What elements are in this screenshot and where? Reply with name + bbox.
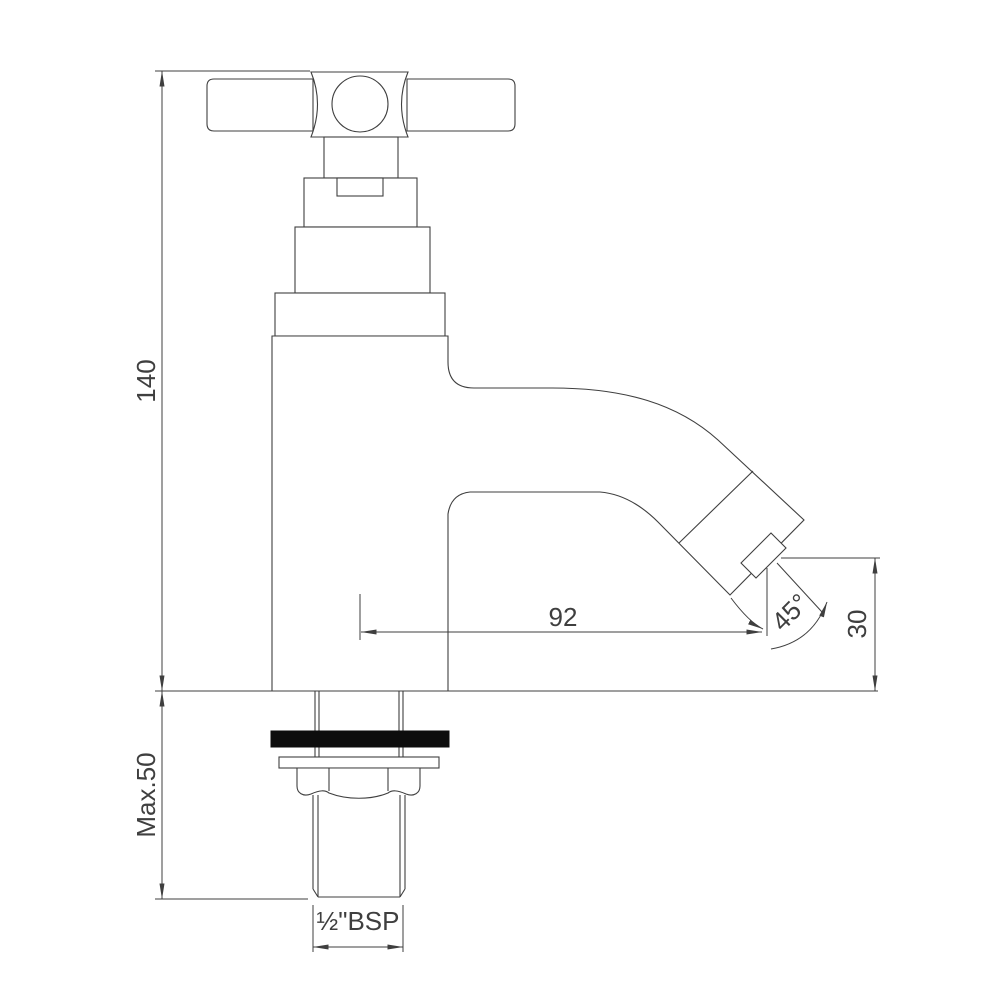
faucet-outline	[207, 72, 804, 897]
dim-label-max50: Max.50	[131, 752, 161, 837]
valve-stem	[324, 137, 398, 178]
backnut-flange	[279, 757, 439, 768]
handle-right-arm	[407, 79, 515, 131]
dim-label-reach-92: 92	[549, 602, 578, 632]
handle-hub-circle	[332, 76, 388, 132]
technical-drawing-page: 140 Max.50 92 45° 30 ½"BSP	[0, 0, 1000, 1000]
dim-label-outlet-30: 30	[842, 610, 872, 639]
base-collar	[275, 293, 445, 336]
body-and-spout	[272, 336, 804, 691]
backnut-hex	[297, 768, 420, 798]
headwork-shroud	[295, 227, 430, 293]
bonnet-notch	[337, 178, 383, 196]
rubber-washer	[271, 731, 449, 747]
faucet-technical-drawing: 140 Max.50 92 45° 30 ½"BSP	[0, 0, 1000, 1000]
dim-label-height-140: 140	[131, 359, 161, 402]
angle-arc-left	[731, 598, 763, 629]
dim-label-thread-bsp: ½"BSP	[317, 906, 400, 936]
handle-left-arm	[207, 79, 313, 131]
threaded-tail	[313, 795, 405, 897]
dim-label-angle-45: 45°	[766, 588, 815, 637]
